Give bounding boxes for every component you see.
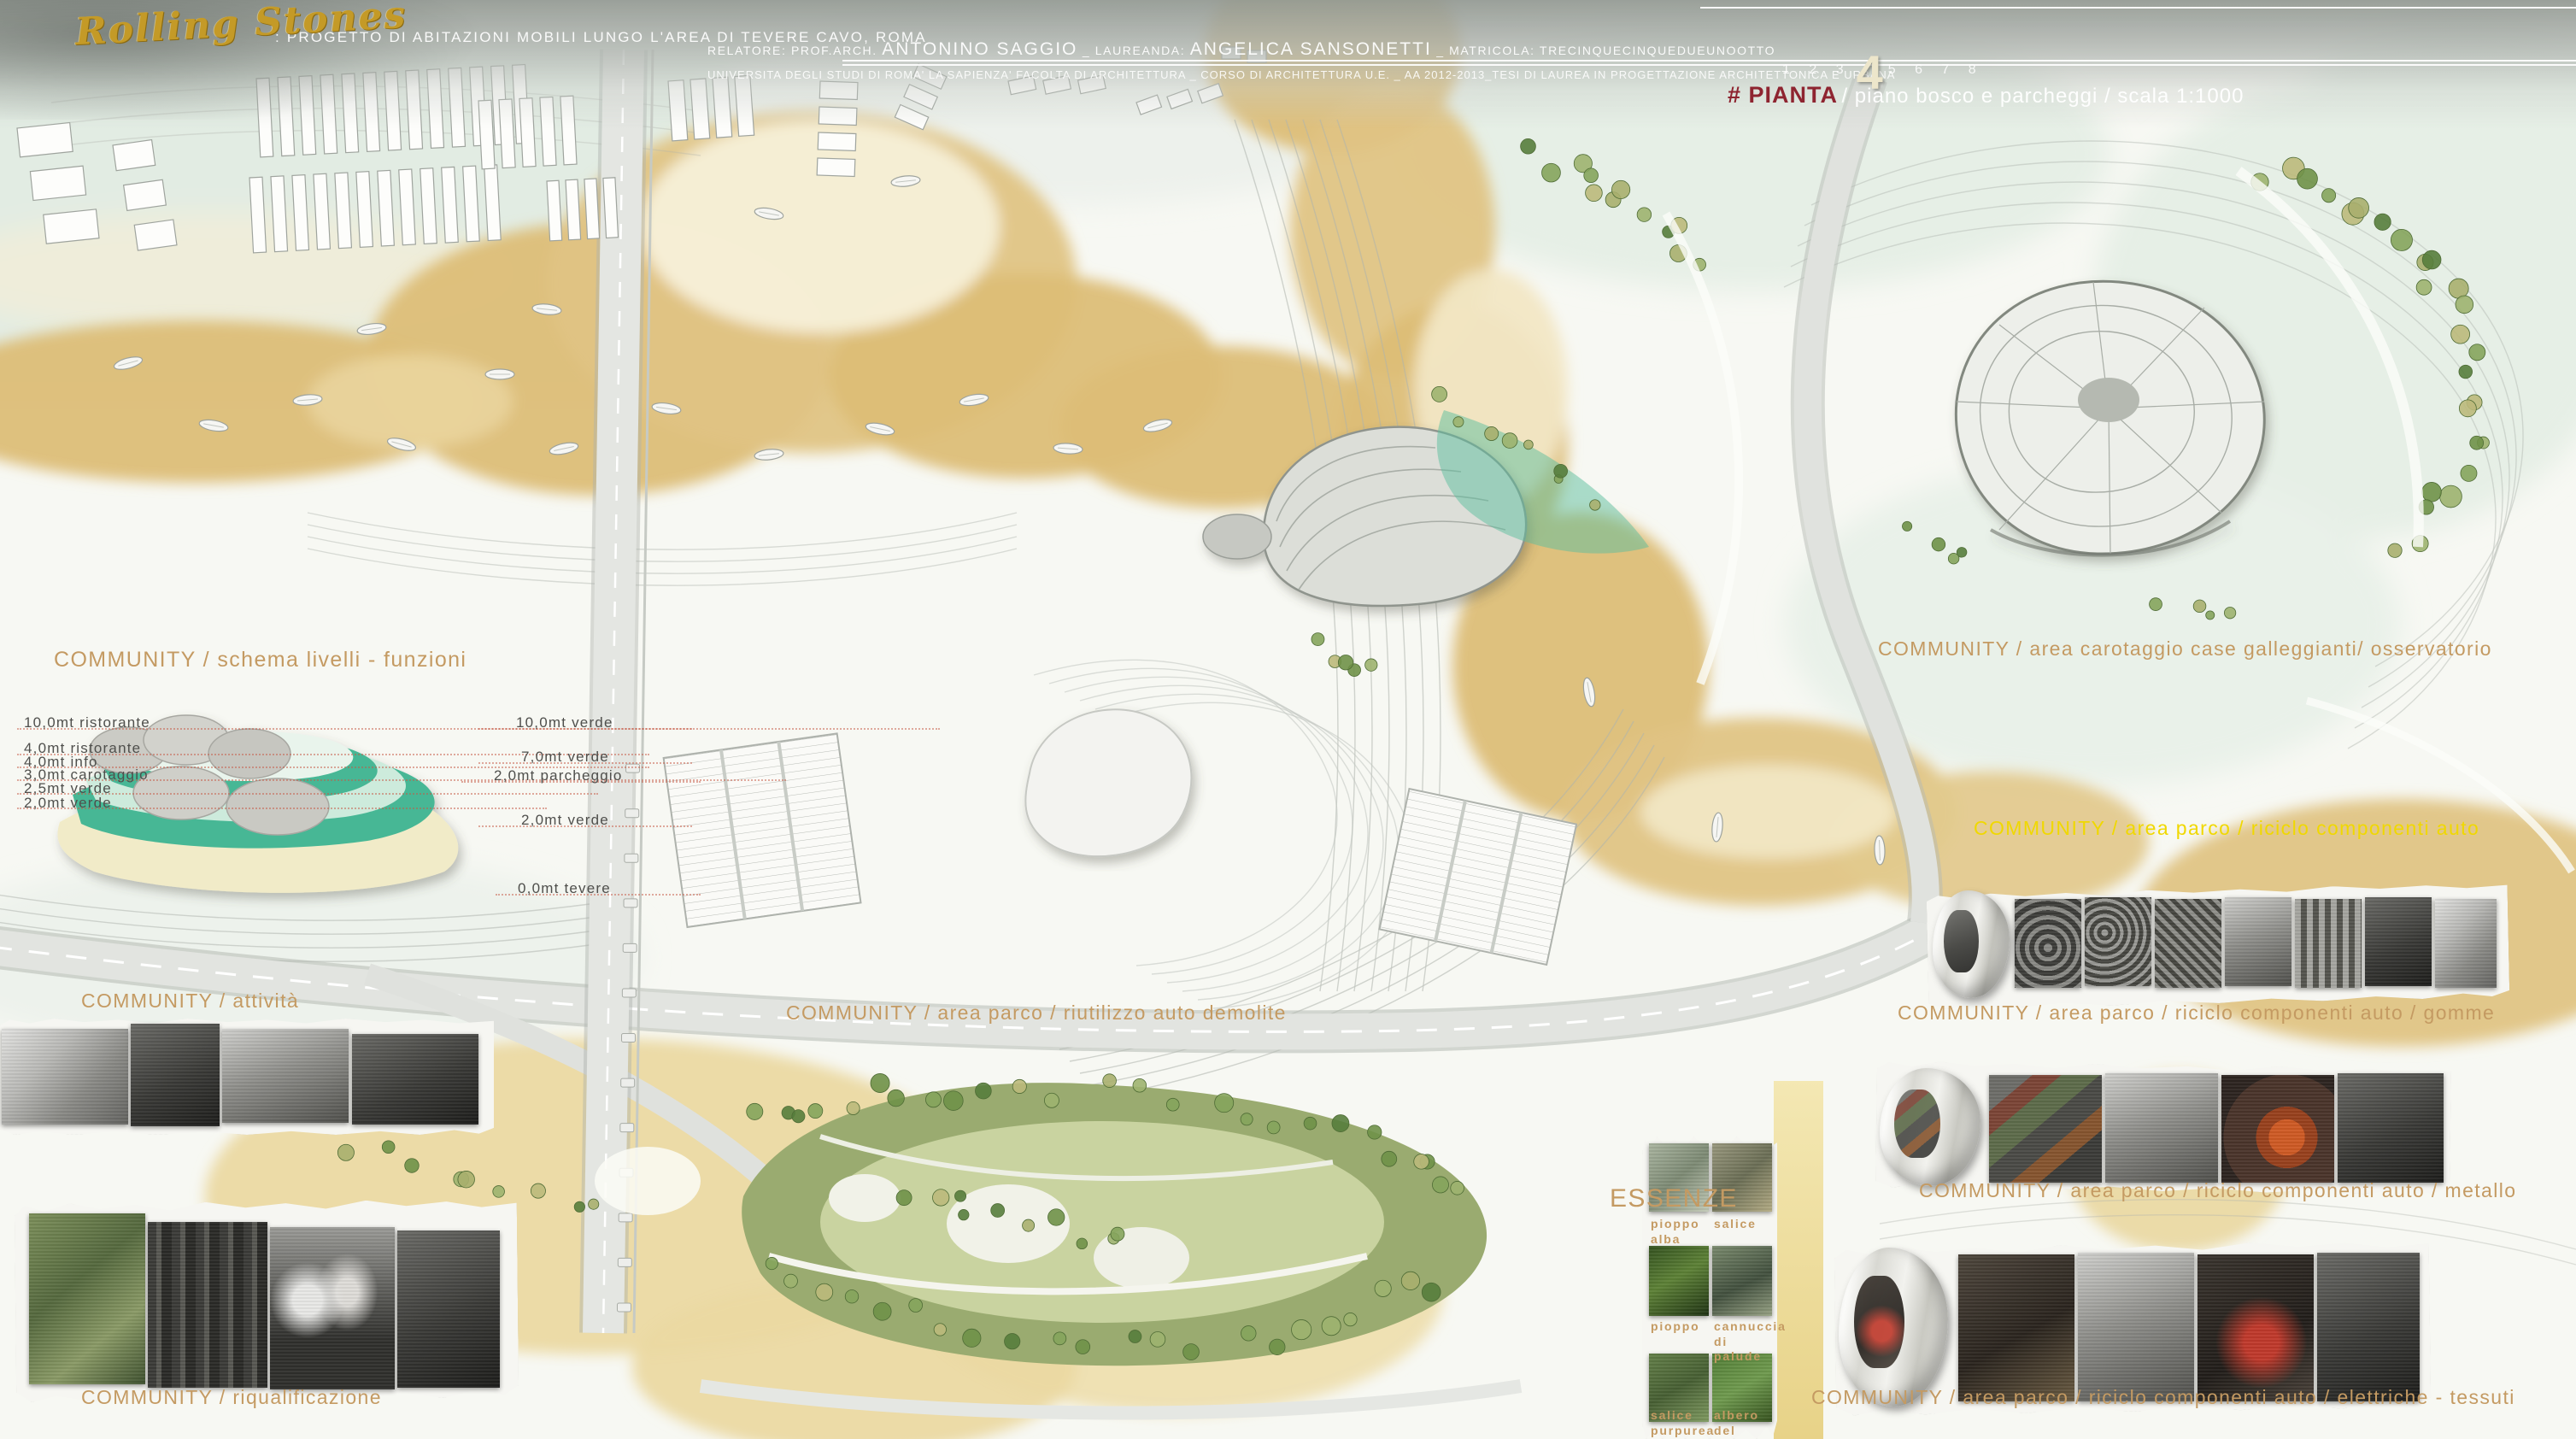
photo-park-walk — [2, 1029, 128, 1125]
tree-icon — [943, 1091, 963, 1111]
tree-icon — [1344, 1313, 1357, 1325]
presentation-board: Rolling Stones : PROGETTO DI ABITAZIONI … — [0, 0, 2576, 1439]
car-icon — [619, 1213, 632, 1222]
photo-tires — [2015, 899, 2081, 988]
tree-icon — [2469, 344, 2485, 361]
photo-pipes — [2085, 897, 2151, 986]
tree-icon — [2451, 325, 2470, 344]
sheet-subtitle: / piano bosco e parcheggi / scala 1:1000 — [1841, 85, 2244, 108]
tree-icon — [871, 1073, 889, 1092]
tree-icon — [1311, 633, 1324, 646]
tree-icon — [589, 1199, 599, 1209]
photo-gravel — [352, 1034, 478, 1125]
tree-icon — [1365, 659, 1377, 671]
building-block — [819, 81, 858, 100]
tree-icon — [1451, 1181, 1464, 1195]
building-block — [817, 158, 855, 177]
photo-jogger — [131, 1024, 220, 1126]
tree-icon — [2456, 296, 2473, 314]
tree-icon — [934, 1324, 946, 1336]
photo-red-hammock — [2198, 1254, 2314, 1401]
tree-icon — [845, 1289, 859, 1303]
tree-icon — [405, 1159, 420, 1173]
tree-icon — [2422, 250, 2441, 269]
tree-icon — [1215, 1094, 1234, 1113]
photo-chip — [1894, 1090, 1940, 1158]
essenza-pioppo-alba: pioppo alba — [1651, 1217, 1709, 1247]
tree-icon — [1338, 655, 1353, 669]
tree-icon — [1183, 1344, 1200, 1360]
tree-icon — [458, 1171, 475, 1188]
tree-icon — [2374, 214, 2391, 230]
tree-icon — [1554, 464, 1568, 478]
level-left-0: 10,0mt ristorante — [24, 714, 150, 731]
tree-icon — [1485, 426, 1499, 440]
credits-matricola: _ MATRICOLA: — [1432, 44, 1540, 57]
essenza-albero-paradiso: albero del paradiso — [1714, 1408, 1774, 1439]
tree-icon — [2459, 365, 2473, 379]
photo-cannuccia — [1712, 1246, 1772, 1316]
essenza-pioppo: pioppo — [1651, 1319, 1709, 1335]
tree-icon — [925, 1092, 941, 1107]
tree-icon — [1401, 1272, 1419, 1289]
tree-icon — [1375, 1280, 1391, 1296]
tree-icon — [1932, 537, 1945, 551]
tree-icon — [1584, 168, 1599, 183]
credits-professor: ANTONINO SAGGIO — [882, 39, 1077, 59]
photo-metal — [2105, 1073, 2218, 1183]
tree-icon — [747, 1103, 763, 1119]
building-block — [30, 166, 85, 200]
pages-after: 5 6 7 8 — [1888, 62, 1984, 77]
tree-icon — [2416, 279, 2432, 295]
photo-yard — [2435, 899, 2497, 988]
car-icon — [622, 1034, 636, 1043]
university-line: UNIVERSITA DEGLI STUDI DI ROMA' LA SAPIE… — [707, 68, 1895, 81]
credits-matricola-number: TRECINQUECINQUEDUEUNOOTTO — [1540, 44, 1775, 57]
tree-icon — [1241, 1326, 1256, 1342]
tree-icon — [766, 1257, 777, 1269]
building-block — [124, 179, 167, 210]
tree-icon — [1414, 1154, 1429, 1169]
tree-icon — [2388, 543, 2402, 557]
label-carotaggio: COMMUNITY / area carotaggio case gallegg… — [1878, 637, 2492, 661]
photo-aerial-green — [29, 1213, 145, 1384]
tree-icon — [1270, 1339, 1285, 1354]
tree-icon — [1611, 180, 1629, 198]
tree-icon — [493, 1186, 505, 1198]
tree-icon — [1322, 1317, 1341, 1336]
tree-icon — [2224, 608, 2235, 619]
credits-student: ANGELICA SANSONETTI — [1190, 39, 1432, 59]
header-rule-bottom — [842, 64, 2576, 66]
tree-icon — [382, 1141, 395, 1154]
tree-icon — [976, 1083, 992, 1099]
tree-icon — [1521, 138, 1536, 154]
sheet-tag: # PIANTA — [1728, 82, 1838, 108]
tree-icon — [963, 1329, 981, 1347]
photo-chip — [1944, 910, 1979, 972]
tree-icon — [574, 1201, 584, 1212]
photo-forest — [148, 1222, 267, 1388]
photo-park-lawn — [222, 1029, 349, 1123]
car-icon — [618, 1258, 631, 1266]
label-metallo: COMMUNITY / area parco / riciclo compone… — [1919, 1179, 2516, 1202]
photo-scrap — [2365, 897, 2432, 986]
car-icon — [625, 854, 638, 862]
car-icon — [625, 809, 639, 818]
tree-icon — [1382, 1151, 1397, 1166]
tree-icon — [2461, 465, 2477, 481]
building-block — [819, 107, 857, 126]
essenza-salice: salice — [1714, 1217, 1772, 1232]
tree-icon — [2349, 197, 2369, 218]
photo-waterside — [397, 1230, 500, 1388]
photo-junk — [1989, 1075, 2102, 1183]
tree-icon — [1166, 1098, 1179, 1111]
tree-icon — [873, 1302, 891, 1320]
tree-icon — [888, 1090, 905, 1107]
tree-icon — [1637, 208, 1652, 222]
tree-icon — [2322, 189, 2336, 203]
photo-chip — [1854, 1276, 1904, 1368]
tree-icon — [1422, 1283, 1441, 1301]
car-icon — [621, 1078, 635, 1087]
tree-icon — [1502, 433, 1517, 449]
tree-icon — [1133, 1078, 1147, 1092]
label-attivita: COMMUNITY / attività — [81, 990, 299, 1013]
tree-icon — [2206, 611, 2215, 620]
label-schema-livelli: COMMUNITY / schema livelli - funzioni — [54, 648, 466, 673]
tree-icon — [792, 1110, 805, 1123]
label-riutilizzo: COMMUNITY / area parco / riutilizzo auto… — [786, 1001, 1287, 1025]
photo-rubber — [2225, 897, 2291, 986]
tree-icon — [1368, 1125, 1382, 1139]
credits-laureanda: _ LAUREANDA: — [1077, 44, 1189, 57]
tree-icon — [1005, 1334, 1020, 1349]
tree-icon — [1023, 1219, 1035, 1231]
tree-icon — [1129, 1330, 1141, 1343]
tree-icon — [1432, 386, 1447, 402]
photo-fountains — [270, 1227, 395, 1389]
tree-icon — [1586, 185, 1603, 202]
building-block — [566, 179, 581, 240]
tree-icon — [909, 1299, 923, 1313]
building-block — [44, 209, 99, 244]
credits-relatore: RELATORE: PROF.ARCH. — [707, 44, 882, 57]
tree-icon — [1044, 1093, 1059, 1107]
tree-icon — [2391, 229, 2412, 250]
tree-icon — [1542, 163, 1561, 182]
tree-icon — [1453, 417, 1464, 427]
level-left-5: 2,0mt verde — [24, 795, 112, 812]
photo-tents — [2317, 1253, 2420, 1401]
tree-icon — [959, 1209, 969, 1219]
tree-icon — [2150, 598, 2162, 611]
photo-weave — [2155, 899, 2221, 988]
tree-icon — [896, 1190, 912, 1206]
building-block — [17, 123, 73, 157]
label-elettriche: COMMUNITY / area parco / riciclo compone… — [1811, 1386, 2515, 1409]
tree-icon — [784, 1274, 798, 1288]
photo-cans — [2295, 899, 2362, 988]
tree-icon — [816, 1283, 833, 1301]
label-essenze: ESSENZE — [1610, 1184, 1738, 1213]
parking-grid-west — [664, 733, 861, 927]
credits-line: RELATORE: PROF.ARCH. ANTONINO SAGGIO _ L… — [707, 39, 1775, 60]
car-icon — [617, 1303, 631, 1312]
tree-icon — [1304, 1117, 1317, 1130]
pages-before: 1 2 3 — [1782, 62, 1851, 77]
essenza-salice-purpurea: salice purpurea — [1651, 1408, 1709, 1438]
tree-icon — [954, 1190, 965, 1201]
tree-icon — [1332, 1115, 1349, 1132]
tree-icon — [337, 1144, 354, 1160]
photo-dome-tent — [2221, 1075, 2334, 1183]
tree-icon — [2440, 485, 2462, 508]
tree-icon — [531, 1184, 545, 1198]
tree-icon — [2459, 400, 2476, 417]
level-right-1: 7,0mt verde — [521, 749, 609, 766]
tree-icon — [1241, 1113, 1253, 1125]
car-icon — [622, 989, 636, 997]
building-block — [547, 180, 562, 241]
tree-icon — [1047, 1209, 1064, 1225]
label-riqualificazione: COMMUNITY / riqualificazione — [81, 1386, 382, 1409]
tree-icon — [1432, 1177, 1448, 1193]
tree-icon — [1077, 1238, 1088, 1249]
essenza-cannuccia: cannuccia di palude — [1714, 1319, 1774, 1365]
tree-icon — [1053, 1332, 1066, 1345]
tree-icon — [1111, 1227, 1124, 1241]
tree-icon — [1267, 1121, 1280, 1134]
photo-wires — [1958, 1254, 2074, 1401]
tree-icon — [1076, 1340, 1090, 1354]
car-icon — [623, 943, 637, 952]
tree-icon — [1590, 500, 1600, 510]
observatory-building — [1956, 281, 2264, 555]
building-block — [134, 220, 177, 250]
sheet-title: # PIANTA / piano bosco e parcheggi / sca… — [1728, 82, 2244, 109]
tree-icon — [1012, 1079, 1026, 1093]
tree-icon — [1103, 1074, 1117, 1088]
header-rule-top — [842, 60, 2576, 62]
tree-icon — [1150, 1331, 1165, 1347]
tree-icon — [1292, 1319, 1311, 1339]
tree-icon — [808, 1104, 823, 1119]
tree-icon — [1523, 440, 1533, 449]
car-icon — [624, 899, 637, 907]
label-gomme: COMMUNITY / area parco / riciclo compone… — [1898, 1001, 2495, 1025]
tree-icon — [1948, 553, 1959, 564]
tree-icon — [2297, 168, 2318, 189]
tree-icon — [847, 1101, 860, 1114]
building-block — [818, 132, 856, 151]
level-right-0: 10,0mt verde — [516, 714, 613, 731]
tree-icon — [991, 1204, 1005, 1218]
corner-rule — [1700, 7, 2576, 9]
photo-pioppo — [1649, 1246, 1709, 1316]
level-right-4: 0,0mt tevere — [518, 880, 611, 897]
tree-icon — [2470, 436, 2484, 449]
tree-icon — [2422, 482, 2442, 502]
level-right-3: 2,0mt verde — [521, 812, 609, 829]
tree-icon — [933, 1189, 949, 1206]
label-riciclo: COMMUNITY / area parco / riciclo compone… — [1974, 817, 2479, 840]
level-right-2: 2,0mt parcheggio — [494, 767, 623, 784]
building-block — [584, 179, 600, 239]
tree-icon — [2193, 600, 2206, 613]
car-icon — [626, 764, 640, 772]
building-block — [113, 140, 155, 171]
tree-icon — [1902, 521, 1911, 531]
building-block — [603, 178, 619, 238]
car-icon — [620, 1124, 634, 1132]
photo-scaffold — [2078, 1253, 2194, 1401]
photo-dark-metal — [2338, 1073, 2444, 1183]
